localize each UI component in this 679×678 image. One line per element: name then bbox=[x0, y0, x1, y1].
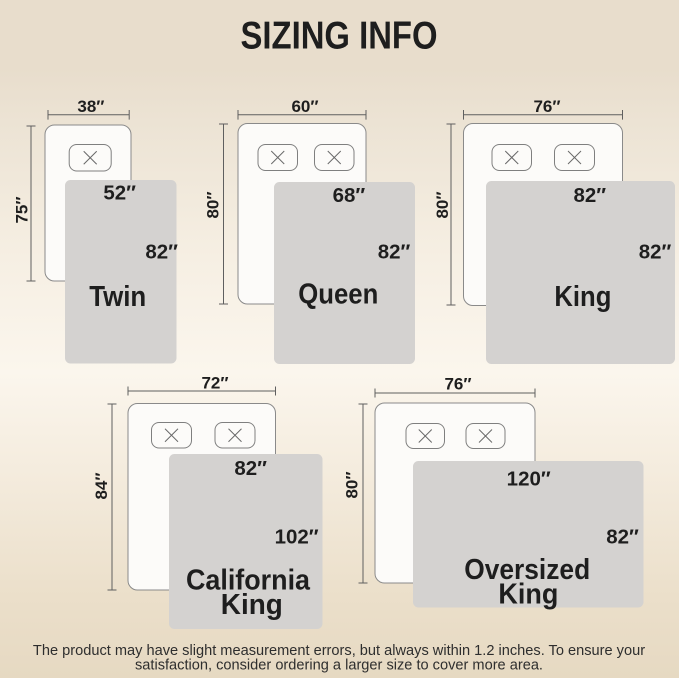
svg-text:SIZING INFO: SIZING INFO bbox=[241, 15, 438, 58]
svg-text:82″: 82″ bbox=[378, 240, 411, 263]
svg-text:King: King bbox=[554, 281, 611, 313]
svg-text:120″: 120″ bbox=[507, 467, 551, 490]
svg-text:76″: 76″ bbox=[533, 97, 560, 116]
svg-text:80″: 80″ bbox=[204, 191, 223, 218]
svg-text:80″: 80″ bbox=[433, 191, 452, 218]
svg-text:38″: 38″ bbox=[77, 97, 104, 116]
svg-text:76″: 76″ bbox=[444, 375, 471, 394]
svg-text:Twin: Twin bbox=[89, 281, 146, 313]
svg-text:75″: 75″ bbox=[13, 196, 32, 223]
svg-text:82″: 82″ bbox=[606, 526, 639, 549]
svg-text:84″: 84″ bbox=[92, 472, 111, 499]
svg-text:60″: 60″ bbox=[291, 97, 318, 116]
svg-text:King: King bbox=[498, 578, 558, 610]
svg-text:satisfaction, consider orderin: satisfaction, consider ordering a larger… bbox=[135, 658, 543, 674]
svg-text:52″: 52″ bbox=[103, 182, 136, 205]
svg-text:King: King bbox=[221, 589, 283, 621]
svg-text:82″: 82″ bbox=[234, 457, 267, 480]
svg-text:82″: 82″ bbox=[639, 240, 672, 263]
svg-text:82″: 82″ bbox=[145, 240, 178, 263]
svg-text:68″: 68″ bbox=[333, 184, 366, 207]
svg-text:Queen: Queen bbox=[298, 279, 378, 311]
svg-text:80″: 80″ bbox=[343, 471, 362, 498]
svg-text:72″: 72″ bbox=[201, 374, 228, 393]
svg-text:102″: 102″ bbox=[275, 525, 319, 548]
svg-text:82″: 82″ bbox=[573, 184, 606, 207]
